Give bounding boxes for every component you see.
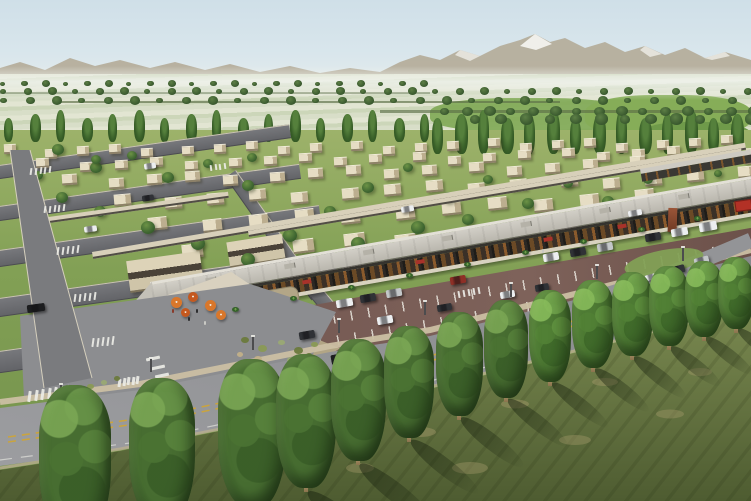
patio-umbrella (205, 300, 216, 311)
patio-umbrella (216, 310, 226, 320)
patio-umbrella (171, 297, 182, 308)
person (204, 321, 206, 325)
light-pole-head (595, 264, 599, 266)
foreground-tree (612, 272, 653, 356)
palm-tree (464, 262, 471, 267)
shrub (101, 380, 107, 385)
foreground-tree (39, 385, 111, 501)
light-pole-head (681, 246, 685, 248)
person (172, 309, 174, 313)
crosswalk-stripe (131, 376, 135, 384)
light-pole-head (59, 383, 63, 385)
aerial-development-render (0, 0, 751, 501)
shrub (294, 347, 303, 354)
palm-tree (290, 296, 297, 301)
palm-tree (694, 216, 701, 221)
shrub (237, 352, 243, 357)
foreground-tree (484, 300, 528, 398)
person (196, 309, 198, 313)
light-pole (424, 301, 426, 315)
light-pole (510, 283, 512, 297)
palm-tree (232, 307, 239, 312)
light-pole-head (509, 282, 513, 284)
palm-tree (522, 250, 529, 255)
crosswalk-stripe (122, 378, 126, 386)
person (188, 317, 190, 321)
light-pole (150, 358, 152, 372)
crosswalk-stripe (223, 163, 226, 169)
light-pole-head (149, 357, 153, 359)
light-pole-head (423, 300, 427, 302)
foreground-tree (649, 266, 689, 346)
foreground-tree (529, 290, 571, 382)
shrub (114, 376, 120, 381)
patio-umbrella (181, 308, 190, 317)
palm-tree (638, 227, 645, 232)
foreground-tree (129, 378, 195, 501)
palm-tree (406, 273, 413, 278)
light-pole (682, 247, 684, 261)
light-pole-head (251, 335, 255, 337)
crosswalk-stripe (214, 164, 217, 170)
foreground-tree (436, 312, 483, 416)
red-entrance-sign (734, 199, 751, 212)
light-pole (338, 319, 340, 333)
foreground-tree (718, 257, 751, 329)
light-pole-head (337, 318, 341, 320)
person (542, 249, 544, 253)
foreground-tree (276, 354, 336, 488)
shrub (258, 345, 267, 352)
foreground-tree (572, 280, 614, 368)
shrub (311, 342, 318, 348)
foreground-tree (331, 339, 386, 461)
light-pole (596, 265, 598, 279)
palm-tree (348, 285, 355, 290)
light-pole (252, 336, 254, 350)
patio-umbrella (188, 292, 198, 302)
palm-tree (580, 239, 587, 244)
shrub (278, 340, 285, 346)
foreground-tree (384, 326, 434, 438)
